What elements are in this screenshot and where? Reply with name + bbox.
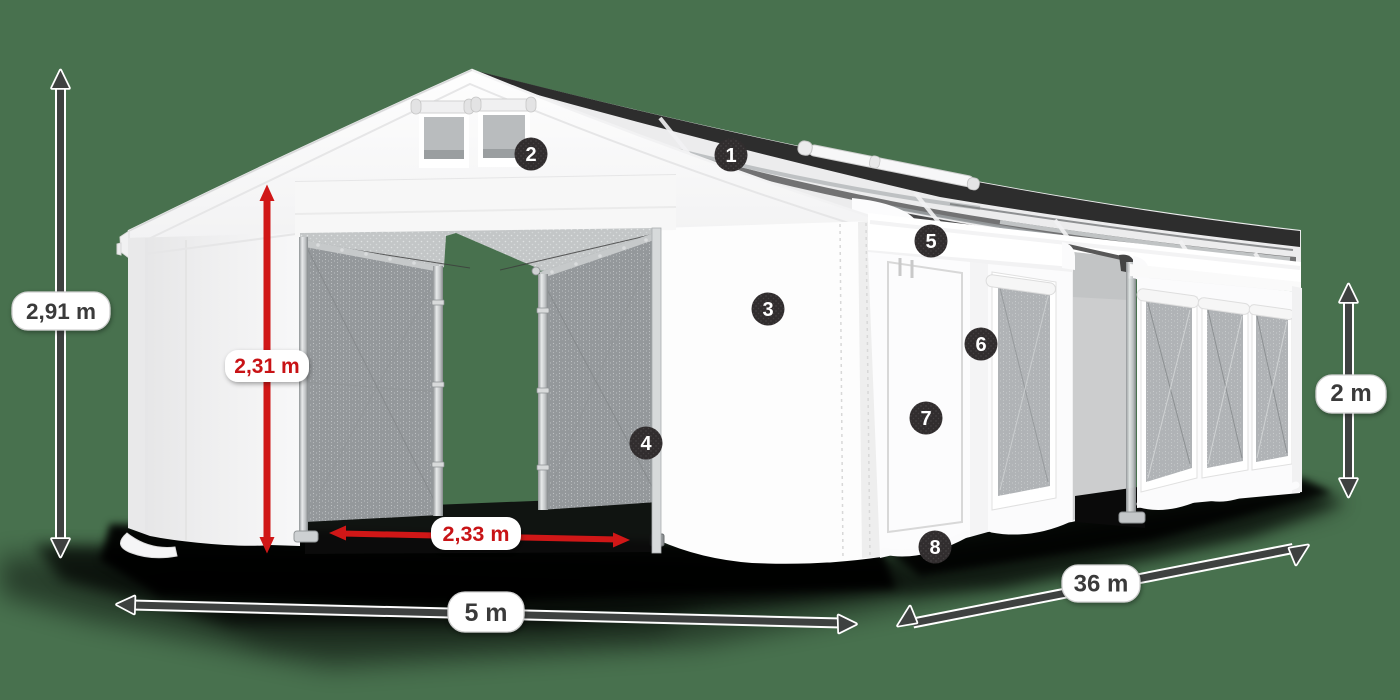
svg-text:2,91 m: 2,91 m (26, 299, 96, 324)
svg-text:8: 8 (929, 537, 940, 559)
svg-text:2,33 m: 2,33 m (443, 522, 510, 546)
svg-text:6: 6 (975, 334, 986, 356)
svg-text:5: 5 (925, 231, 936, 253)
svg-text:2: 2 (525, 144, 536, 166)
svg-text:2 m: 2 m (1330, 380, 1371, 407)
svg-text:1: 1 (725, 145, 736, 167)
svg-text:4: 4 (640, 433, 652, 455)
svg-text:36 m: 36 m (1074, 571, 1129, 598)
svg-text:2,31 m: 2,31 m (234, 355, 299, 378)
svg-text:3: 3 (762, 299, 773, 321)
svg-text:7: 7 (920, 408, 931, 430)
svg-text:5 m: 5 m (464, 599, 507, 627)
